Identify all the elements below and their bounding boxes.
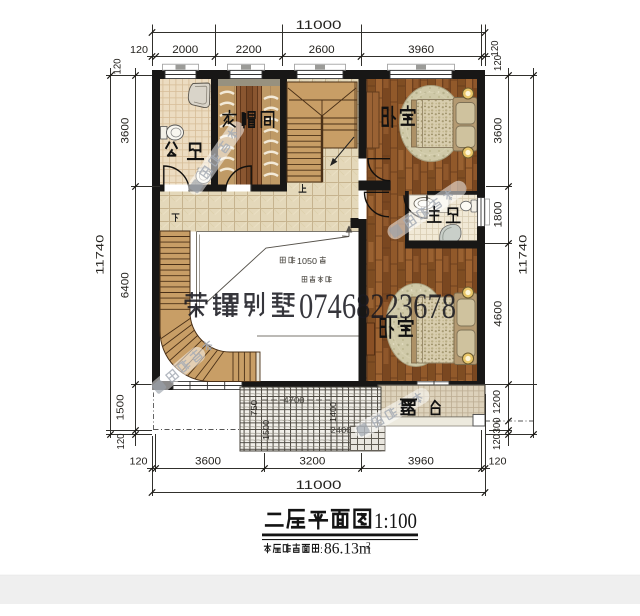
svg-text:86.13m: 86.13m bbox=[324, 541, 371, 558]
svg-text:3600: 3600 bbox=[195, 456, 221, 468]
svg-text:1:100: 1:100 bbox=[374, 508, 417, 533]
svg-text:1200: 1200 bbox=[491, 390, 503, 414]
svg-text:120: 120 bbox=[130, 45, 148, 56]
svg-text:750: 750 bbox=[250, 399, 259, 416]
svg-text:07468223678: 07468223678 bbox=[299, 286, 456, 326]
svg-text:6400: 6400 bbox=[120, 272, 132, 298]
svg-text:1500: 1500 bbox=[115, 394, 127, 420]
svg-text:11740: 11740 bbox=[518, 235, 530, 275]
svg-text:2: 2 bbox=[366, 542, 371, 552]
svg-text::: : bbox=[320, 544, 323, 556]
svg-text:120: 120 bbox=[492, 434, 503, 450]
svg-text:120: 120 bbox=[116, 433, 127, 449]
svg-text:120: 120 bbox=[490, 40, 501, 56]
svg-text:2000: 2000 bbox=[172, 44, 198, 56]
svg-text:120: 120 bbox=[493, 55, 504, 71]
svg-text:4700: 4700 bbox=[284, 396, 306, 405]
svg-text:11740: 11740 bbox=[95, 235, 107, 275]
svg-text:120: 120 bbox=[130, 457, 148, 468]
svg-text:1800: 1800 bbox=[493, 202, 505, 228]
svg-text:2400: 2400 bbox=[331, 426, 353, 435]
svg-text:2200: 2200 bbox=[236, 44, 262, 56]
svg-text:3960: 3960 bbox=[408, 456, 434, 468]
svg-text:120: 120 bbox=[113, 58, 124, 74]
svg-text:3600: 3600 bbox=[120, 118, 132, 144]
svg-text:3960: 3960 bbox=[408, 44, 434, 56]
svg-text:3200: 3200 bbox=[299, 456, 325, 468]
svg-text:11000: 11000 bbox=[296, 480, 342, 492]
svg-text:1050: 1050 bbox=[297, 256, 317, 266]
svg-text:1400: 1400 bbox=[329, 401, 338, 422]
svg-text:300: 300 bbox=[492, 417, 503, 433]
svg-text:3600: 3600 bbox=[493, 118, 505, 144]
svg-text:11000: 11000 bbox=[296, 20, 342, 32]
svg-text:2600: 2600 bbox=[309, 44, 335, 56]
svg-text:120: 120 bbox=[489, 457, 507, 468]
svg-text:4600: 4600 bbox=[493, 301, 505, 327]
svg-text:1500: 1500 bbox=[262, 419, 271, 440]
